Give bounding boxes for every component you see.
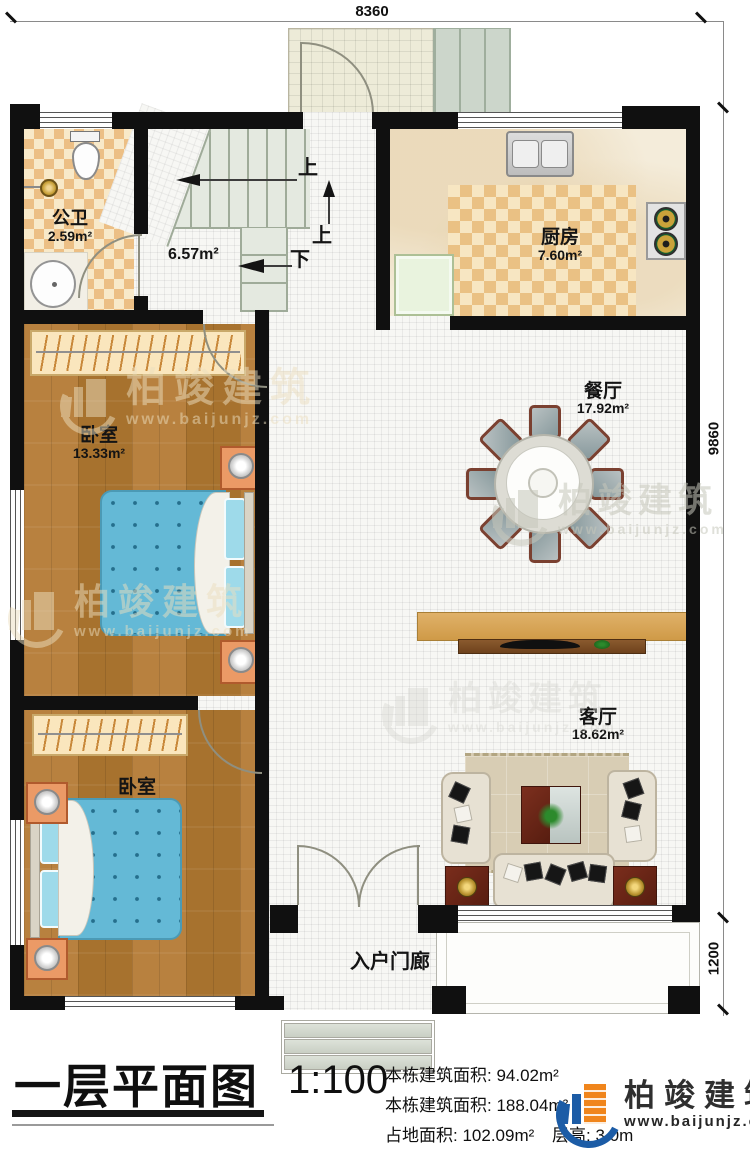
window [458,112,622,129]
stat-footprint-area: 占地面积: 102.09m² [385,1121,534,1146]
window [458,905,672,922]
tv-icon [500,640,580,649]
nightstand-lamp-icon [228,453,254,479]
window [65,996,235,1010]
dim-height-main-label: 9860 [706,409,723,469]
washbasin-drain [52,282,57,287]
stat-label: 占地面积: [385,1126,458,1145]
wall [10,640,24,820]
wall [134,296,148,310]
bedroom-upper-label: 卧室 [74,426,124,446]
wall [270,905,298,933]
stat-label: 本栋建筑面积: [385,1096,492,1115]
porch-inner-line [446,932,690,1004]
floor-plan: 8360 9860 1200 公卫 2.59m² 上 上 下 6.57m² 厨房… [0,0,750,1165]
wall [10,310,203,324]
sofa-pillow [588,864,607,883]
company-logo-icon [556,1074,614,1136]
nightstand-lamp-icon [228,647,254,673]
bedroom-lower-label: 卧室 [112,778,162,798]
sofa-pillow [454,805,473,824]
step [284,1023,432,1038]
stair-down-line [262,265,292,267]
tv-feature-wall [417,612,688,641]
wall [134,112,148,234]
porch-pillar [668,986,700,1014]
wall [376,112,390,330]
kitchen-area: 7.60m² [524,248,596,263]
sofa [493,853,615,909]
kitchen-sink-icon [506,131,574,177]
armchair-right [607,770,657,862]
stove-icon [646,202,686,260]
title-rule-thick [12,1110,264,1117]
toilet-icon [70,131,100,142]
sofa-pillow [451,825,471,845]
dim-width-label: 8360 [342,3,402,20]
shower-head-icon [40,179,58,197]
side-table-left [445,866,489,908]
porch-label: 入户门廊 [320,952,460,973]
sofa-pillow [623,778,645,800]
bed-headboard [244,492,254,634]
stat-value: 94.02m² [496,1066,558,1085]
bathroom-area: 2.59m² [38,229,102,244]
dim-line-top [10,21,724,22]
stair-up-arrow [176,174,200,186]
window [10,490,24,640]
dim-height-porch-label: 1200 [706,929,723,989]
sofa-pillow [624,825,642,843]
wall [418,905,458,933]
stair-down-label: 下 [290,250,310,271]
bathroom-label: 公卫 [38,209,102,228]
title-rule-thin [12,1124,274,1126]
bed-pillow [224,498,246,560]
stair-up-line [198,179,297,181]
stair-up-label-2: 上 [312,226,332,247]
window [10,820,24,945]
sofa-pillow [621,800,642,821]
closet-rod [38,733,182,735]
table-lamp-icon [625,877,645,897]
coffee-table [521,786,581,844]
table-plant-icon [538,803,564,829]
stat-label: 本栋建筑面积: [385,1066,492,1085]
fridge-icon [394,254,454,316]
window [40,112,112,129]
stairwell-area: 6.57m² [168,247,219,264]
nightstand [26,782,68,824]
stat-building-area-2: 本栋建筑面积: 188.04m² [385,1091,568,1116]
sofa-pillow [448,781,471,804]
stair-up-arrow-2 [323,180,335,197]
stair-down-arrow [238,259,264,273]
dim-line-right [723,21,724,1016]
bed [100,490,252,636]
plan-title: 一层平面图 [14,1048,259,1117]
wall [10,696,198,710]
stove-burner [654,207,678,231]
bed-pillow [224,566,246,628]
kitchen-label: 厨房 [520,228,600,248]
plan-scale: 1:100 [288,1058,388,1103]
wall [672,905,700,922]
sofa-pillow [544,863,566,885]
wall [10,996,65,1010]
wall [255,310,269,996]
stair-up-line-2 [328,194,330,224]
sofa-pillow [524,862,544,882]
step [284,1039,432,1054]
armchair-left [441,772,491,864]
stair-up-label-1: 上 [298,158,318,179]
sofa-pillow [567,861,588,882]
nightstand [26,938,68,980]
bedroom-upper-area: 13.33m² [64,446,134,461]
sink-basin [541,140,568,168]
nightstand-lamp-icon [34,789,60,815]
closet [32,714,188,756]
sink-basin [512,140,539,168]
company-name: 柏竣建筑 [624,1080,750,1111]
terrace-roof-panel [433,28,511,115]
stove-burner [654,232,678,256]
stat-value: 102.09m² [462,1126,534,1145]
stat-building-area-1: 本栋建筑面积: 94.02m² [385,1061,559,1086]
wall [686,129,700,922]
living-label: 客厅 [568,708,628,728]
nightstand-lamp-icon [34,945,60,971]
wall [10,104,40,129]
wall [622,106,700,129]
dining-chair [529,529,561,563]
table-lamp-icon [457,877,477,897]
company-logo: 柏竣建筑 www.baijunjz.com [556,1074,750,1136]
dining-label: 餐厅 [570,382,636,402]
sofa-pillow [503,863,523,883]
dining-chair [590,468,624,500]
living-area: 18.62m² [560,727,636,742]
tv-plant-icon [594,640,610,649]
side-table-right [613,866,657,908]
company-url: www.baijunjz.com [624,1113,750,1130]
wall [450,316,700,330]
dining-table-hub [528,468,558,498]
porch-pillar [432,986,466,1014]
dining-area: 17.92m² [566,401,640,416]
wall [235,996,284,1010]
